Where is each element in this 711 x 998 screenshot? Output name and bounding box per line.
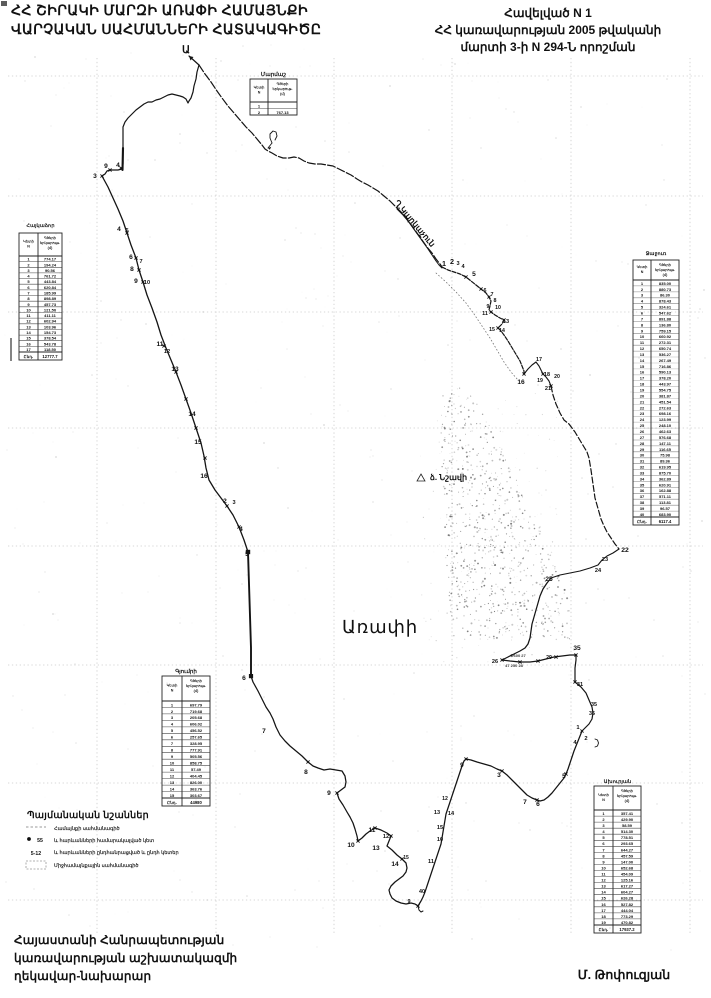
svg-text:Հավելված N 1: Հավելված N 1 [504, 6, 592, 20]
svg-text:14: 14 [26, 330, 31, 335]
svg-text:10: 10 [495, 305, 501, 311]
svg-text:31: 31 [640, 459, 645, 464]
svg-text:30: 30 [640, 453, 645, 458]
svg-text:118.50: 118.50 [44, 347, 57, 352]
svg-text:6: 6 [242, 675, 246, 682]
svg-text:590.13: 590.13 [659, 370, 672, 375]
svg-text:362.89: 362.89 [659, 476, 672, 481]
svg-text:617.27: 617.27 [621, 884, 634, 889]
svg-text:Կետի: Կետի [167, 683, 178, 688]
svg-text:12: 12 [26, 319, 31, 324]
svg-text:194.24: 194.24 [44, 262, 57, 267]
svg-text:40: 40 [419, 889, 425, 895]
svg-text:505.56: 505.56 [190, 754, 203, 759]
svg-text:14: 14 [448, 811, 455, 817]
svg-text:759.15: 759.15 [659, 328, 672, 333]
svg-text:14: 14 [391, 861, 399, 868]
svg-text:378.20: 378.20 [659, 376, 672, 381]
svg-text:Գծերի: Գծերի [190, 678, 203, 683]
svg-text:7: 7 [139, 259, 142, 265]
svg-text:կառավարության աշխատակազմի: կառավարության աշխատակազմի [14, 951, 237, 965]
svg-text:Ա: Ա [182, 44, 190, 56]
svg-text:683.90: 683.90 [659, 512, 672, 517]
svg-text:36: 36 [589, 711, 595, 717]
svg-text:9: 9 [487, 304, 490, 310]
svg-text:12: 12 [442, 796, 448, 802]
svg-text:10: 10 [437, 837, 443, 843]
svg-text:10: 10 [170, 761, 175, 766]
svg-text:554.75: 554.75 [659, 388, 672, 393]
svg-text:8: 8 [130, 266, 134, 273]
svg-text:404.45: 404.45 [190, 773, 203, 778]
svg-text:826.00: 826.00 [190, 780, 203, 785]
svg-text:Ընդ.: Ընդ. [599, 927, 609, 932]
svg-text:37: 37 [640, 494, 645, 499]
svg-text:606.02: 606.02 [190, 722, 203, 727]
svg-text:443.84: 443.84 [44, 279, 57, 284]
svg-text:5: 5 [472, 271, 476, 278]
svg-text:698.16: 698.16 [659, 411, 672, 416]
svg-text:880.73: 880.73 [659, 287, 672, 292]
svg-text:և հարևանների ընդհանրացված և ըն: և հարևանների ընդհանրացված և ընդհ կետեր [54, 849, 179, 856]
svg-text:411.11: 411.11 [44, 313, 57, 318]
svg-text:444.04: 444.04 [621, 908, 634, 913]
svg-text:12: 12 [164, 349, 170, 355]
svg-text:13: 13 [170, 780, 175, 785]
svg-text:719.68: 719.68 [190, 709, 203, 714]
svg-text:644.27: 644.27 [621, 847, 634, 852]
svg-text:456.52: 456.52 [190, 728, 203, 733]
svg-text:20: 20 [554, 374, 560, 380]
svg-text:20: 20 [640, 393, 645, 398]
svg-text:16: 16 [601, 902, 606, 907]
svg-text:363.76: 363.76 [190, 786, 203, 791]
svg-text:13: 13 [640, 352, 645, 357]
svg-text:9: 9 [327, 790, 331, 797]
svg-text:6: 6 [129, 254, 133, 261]
svg-text:697.79: 697.79 [190, 702, 203, 707]
svg-text:136.80: 136.80 [659, 322, 672, 327]
svg-text:4: 4 [116, 162, 120, 169]
svg-text:778.51: 778.51 [621, 835, 634, 840]
svg-text:6: 6 [484, 288, 487, 294]
svg-text:4: 4 [117, 226, 121, 233]
svg-text:22: 22 [640, 405, 645, 410]
svg-text:Գծերի: Գծերի [659, 262, 672, 267]
svg-text:44980: 44980 [190, 800, 202, 805]
svg-text:147.00: 147.00 [621, 859, 634, 864]
svg-text:8: 8 [304, 769, 308, 776]
svg-text:Կետի: Կետի [254, 85, 265, 90]
svg-text:10: 10 [144, 280, 150, 286]
svg-text:2: 2 [223, 498, 227, 505]
svg-text:երկարութ.: երկարութ. [617, 793, 637, 798]
svg-text:89.36: 89.36 [660, 459, 671, 464]
svg-text:29: 29 [546, 655, 552, 661]
svg-text:75.98: 75.98 [660, 453, 671, 458]
svg-text:12777.7: 12777.7 [42, 354, 58, 359]
svg-text:N: N [602, 798, 605, 802]
svg-text:3: 3 [232, 500, 235, 506]
svg-text:(մ): (մ) [280, 91, 285, 96]
svg-text:90.56: 90.56 [45, 268, 56, 273]
svg-text:Գծերի: Գծերի [277, 81, 290, 86]
svg-text:773.29: 773.29 [621, 914, 634, 919]
svg-text:205.68: 205.68 [190, 715, 203, 720]
svg-text:Կետի: Կետի [23, 239, 34, 244]
svg-text:17: 17 [536, 357, 542, 363]
svg-text:10: 10 [26, 307, 31, 312]
svg-text:443.97: 443.97 [659, 382, 672, 387]
svg-text:328.95: 328.95 [190, 741, 203, 746]
svg-text:N: N [27, 245, 30, 249]
svg-text:125.16: 125.16 [621, 878, 634, 883]
svg-text:15: 15 [437, 825, 443, 831]
svg-text:652.68: 652.68 [621, 865, 634, 870]
svg-text:Գծերի: Գծերի [621, 788, 634, 793]
svg-text:31: 31 [577, 682, 583, 688]
svg-text:9: 9 [134, 278, 138, 285]
svg-text:660.92: 660.92 [659, 334, 672, 339]
svg-text:185.99: 185.99 [44, 291, 57, 296]
svg-text:21: 21 [640, 399, 645, 404]
svg-text:8: 8 [494, 298, 497, 304]
svg-text:15: 15 [170, 793, 175, 798]
svg-text:123.99: 123.99 [659, 417, 672, 422]
svg-text:536.27: 536.27 [659, 352, 672, 357]
svg-text:272.63: 272.63 [659, 405, 672, 410]
svg-text:14: 14 [601, 890, 606, 895]
svg-text:ձ. Նշավի: ձ. Նշավի [430, 473, 467, 482]
svg-text:3: 3 [456, 261, 459, 267]
svg-text:7: 7 [262, 728, 266, 735]
svg-text:116.65: 116.65 [659, 447, 672, 452]
svg-text:23: 23 [602, 557, 608, 563]
svg-text:39: 39 [640, 506, 645, 511]
svg-text:470.82: 470.82 [621, 920, 634, 925]
svg-text:7: 7 [523, 799, 527, 806]
svg-text:16: 16 [517, 379, 525, 386]
svg-text:15: 15 [601, 896, 606, 901]
svg-text:2: 2 [584, 736, 587, 742]
svg-text:12: 12 [383, 834, 389, 840]
svg-text:26: 26 [492, 659, 498, 665]
svg-text:103.96: 103.96 [44, 324, 57, 329]
svg-text:Գծերի: Գծերի [44, 235, 57, 240]
svg-text:29: 29 [640, 447, 645, 452]
svg-text:Միջհամայնքային սահմանագիծ: Միջհամայնքային սահմանագիծ [54, 862, 139, 869]
svg-text:18: 18 [544, 372, 550, 378]
svg-text:Ջաջուռ: Ջաջուռ [646, 251, 667, 257]
svg-text:147.11: 147.11 [659, 441, 672, 446]
svg-text:858.75: 858.75 [190, 761, 203, 766]
svg-text:381.87: 381.87 [659, 393, 672, 398]
svg-text:891.88: 891.88 [659, 316, 672, 321]
svg-text:33: 33 [640, 470, 645, 475]
svg-text:620.84: 620.84 [44, 285, 57, 290]
svg-text:13: 13 [171, 366, 179, 373]
svg-text:երկարութ.: երկարութ. [272, 86, 292, 91]
svg-text:10: 10 [347, 842, 355, 849]
svg-text:767.13: 767.13 [276, 110, 289, 115]
svg-text:36: 36 [640, 488, 645, 493]
svg-text:ղեկավար-նախարար: ղեկավար-նախարար [14, 969, 151, 983]
svg-text:Կետի: Կետի [598, 792, 609, 797]
svg-text:13: 13 [434, 810, 440, 816]
svg-text:86.30: 86.30 [660, 293, 671, 298]
svg-text:Պայմանական նշաններ: Պայմանական նշաններ [27, 809, 149, 821]
svg-text:13: 13 [26, 324, 31, 329]
svg-text:N: N [641, 270, 644, 274]
svg-text:543.78: 543.78 [44, 341, 57, 346]
svg-text:619.95: 619.95 [659, 465, 672, 470]
svg-text:11: 11 [428, 859, 434, 865]
svg-text:Ընդ.: Ընդ. [24, 354, 34, 359]
svg-text:55: 55 [37, 838, 43, 844]
svg-text:650.74: 650.74 [659, 346, 672, 351]
svg-text:15: 15 [26, 336, 31, 341]
svg-text:35: 35 [591, 702, 597, 708]
svg-text:ՀՀ ՇԻՐԱԿԻ ՄԱՐԶԻ ԱՌԱՓԻ ՀԱՄԱՅՆՔԻ: ՀՀ ՇԻՐԱԿԻ ՄԱՐԶԻ ԱՌԱՓԻ ՀԱՄԱՅՆՔԻ [11, 2, 308, 18]
svg-text:96.57: 96.57 [660, 506, 671, 511]
svg-text:777.91: 777.91 [190, 748, 203, 753]
svg-text:19: 19 [601, 920, 606, 925]
svg-text:462.63: 462.63 [659, 429, 672, 434]
svg-text:N: N [171, 689, 174, 693]
svg-text:Կետի: Կետի [637, 264, 648, 269]
svg-text:602.94: 602.94 [44, 319, 57, 324]
svg-text:17: 17 [26, 347, 31, 352]
svg-text:32: 32 [640, 465, 645, 470]
svg-text:716.86: 716.86 [659, 364, 672, 369]
svg-text:457.59: 457.59 [621, 853, 634, 858]
svg-text:2: 2 [450, 257, 454, 266]
svg-text:9: 9 [460, 762, 464, 769]
svg-text:13: 13 [601, 884, 606, 889]
svg-text:11: 11 [482, 311, 488, 317]
svg-text:մարտի 3-ի N 294-Ն որոշման: մարտի 3-ի N 294-Ն որոշման [461, 40, 636, 54]
svg-text:Ախուրյան: Ախուրյան [604, 779, 632, 785]
svg-text:38: 38 [640, 500, 645, 505]
svg-text:121.50: 121.50 [44, 307, 57, 312]
svg-text:14: 14 [640, 358, 645, 363]
svg-text:47 250 28: 47 250 28 [505, 663, 524, 668]
svg-text:Ընդ.: Ընդ. [167, 800, 177, 805]
svg-text:1: 1 [442, 259, 446, 268]
svg-text:13: 13 [372, 845, 380, 852]
svg-text:57.49: 57.49 [191, 767, 202, 772]
svg-text:ՎԱՐՉԱԿԱՆ ՍԱՀՄԱՆՆԵՐԻ ՀԱՏԱԿԱԳԻԾԸ: ՎԱՐՉԱԿԱՆ ՍԱՀՄԱՆՆԵՐԻ ՀԱՏԱԿԱԳԻԾԸ [11, 21, 321, 37]
svg-text:527.82: 527.82 [621, 902, 634, 907]
svg-text:162.88: 162.88 [659, 488, 672, 493]
svg-text:774.17: 774.17 [44, 257, 57, 262]
svg-text:24: 24 [640, 417, 645, 422]
svg-text:761.72: 761.72 [44, 274, 57, 279]
svg-text:Հայաստանի Հանրապետության: Հայաստանի Հանրապետության [14, 933, 224, 947]
svg-text:571.11: 571.11 [659, 494, 672, 499]
svg-text:293.65: 293.65 [621, 841, 634, 846]
svg-text:18: 18 [640, 382, 645, 387]
svg-text:12: 12 [601, 878, 606, 883]
svg-text:Համայնքի սահմանագիծ: Համայնքի սահմանագիծ [54, 825, 120, 832]
svg-text:457.73: 457.73 [44, 302, 57, 307]
svg-text:257.65: 257.65 [190, 735, 203, 740]
svg-text:35: 35 [640, 482, 645, 487]
svg-text:154.73: 154.73 [44, 330, 57, 335]
svg-text:Գյումրի: Գյումրի [175, 669, 197, 675]
svg-text:267.49: 267.49 [659, 358, 672, 363]
svg-text:898.89: 898.89 [44, 296, 57, 301]
svg-text:3: 3 [497, 772, 501, 779]
svg-text:23: 23 [640, 411, 645, 416]
svg-text:25: 25 [640, 423, 645, 428]
svg-text:22: 22 [621, 547, 629, 554]
svg-text:14: 14 [499, 328, 505, 334]
svg-text:620.91: 620.91 [659, 482, 672, 487]
svg-text:19: 19 [640, 388, 645, 393]
svg-text:18: 18 [601, 914, 606, 919]
svg-text:Մ. Թոփուզյան: Մ. Թոփուզյան [578, 968, 671, 982]
svg-text:6117.4: 6117.4 [659, 519, 672, 524]
svg-text:272.31: 272.31 [659, 340, 672, 345]
svg-text:6: 6 [536, 801, 540, 808]
svg-text:303.67: 303.67 [190, 793, 203, 798]
svg-text:27: 27 [640, 435, 645, 440]
svg-text:9: 9 [408, 899, 411, 905]
svg-text:ՀՀ կառավարության 2005 թվականի: ՀՀ կառավարության 2005 թվականի [435, 23, 661, 37]
svg-text:Փ600 27: Փ600 27 [510, 653, 526, 658]
svg-text:(մ): (մ) [625, 798, 630, 803]
svg-text:(մ): (մ) [48, 245, 53, 250]
svg-text:28: 28 [640, 441, 645, 446]
svg-text:9: 9 [104, 163, 108, 170]
svg-text:26: 26 [640, 429, 645, 434]
svg-text:N: N [258, 91, 261, 95]
svg-text:58.59: 58.59 [622, 823, 633, 828]
svg-text:3: 3 [93, 173, 97, 180]
svg-text:16: 16 [26, 341, 31, 346]
svg-text:15: 15 [403, 855, 409, 861]
svg-text:16: 16 [640, 370, 645, 375]
svg-text:10: 10 [640, 334, 645, 339]
svg-text:35: 35 [573, 645, 581, 652]
svg-text:երկարութ.: երկարութ. [655, 267, 675, 272]
svg-text:Մարմաշ: Մարմաշ [261, 71, 286, 78]
svg-text:12: 12 [640, 346, 645, 351]
svg-text:357.41: 357.41 [621, 811, 634, 816]
svg-text:12: 12 [170, 773, 175, 778]
svg-text:14: 14 [170, 786, 175, 791]
svg-text:(մ): (մ) [194, 688, 199, 693]
svg-text:514.30: 514.30 [621, 829, 634, 834]
svg-text:երկարութ.: երկարութ. [186, 683, 206, 688]
svg-text:19: 19 [537, 378, 543, 384]
svg-text:15: 15 [489, 327, 495, 333]
svg-text:24: 24 [595, 568, 602, 574]
svg-text:113.81: 113.81 [659, 500, 672, 505]
svg-text:324.61: 324.61 [659, 305, 672, 310]
svg-text:17: 17 [640, 376, 645, 381]
svg-text:15: 15 [640, 364, 645, 369]
svg-text:34: 34 [640, 476, 645, 481]
svg-text:248.10: 248.10 [659, 423, 672, 428]
svg-text:և հարևանների համարակալված կետ: և հարևանների համարակալված կետ [54, 837, 154, 844]
svg-text:17937.2: 17937.2 [619, 927, 635, 932]
svg-text:Հայկաձոր: Հայկաձոր [26, 223, 54, 229]
svg-text:875.70: 875.70 [659, 470, 672, 475]
svg-text:10: 10 [601, 865, 606, 870]
svg-text:14: 14 [188, 411, 196, 418]
svg-text:5-12: 5-12 [31, 851, 41, 857]
svg-text:451.54: 451.54 [659, 399, 672, 404]
svg-text:429.90: 429.90 [621, 817, 634, 822]
svg-text:4: 4 [239, 526, 243, 533]
svg-text:25: 25 [545, 576, 553, 583]
svg-text:40: 40 [640, 512, 645, 517]
svg-text:835.00: 835.00 [659, 281, 672, 286]
svg-text:17: 17 [601, 908, 606, 913]
svg-text:576.68: 576.68 [659, 435, 672, 440]
svg-text:626.28: 626.28 [621, 896, 634, 901]
svg-text:Առափի: Առափի [342, 617, 418, 637]
svg-text:15: 15 [194, 439, 202, 446]
svg-text:878.43: 878.43 [659, 299, 672, 304]
svg-text:378.54: 378.54 [44, 336, 57, 341]
svg-text:547.62: 547.62 [659, 310, 672, 315]
svg-text:երկարութ.: երկարութ. [40, 240, 60, 245]
svg-text:454.09: 454.09 [621, 871, 634, 876]
svg-text:16: 16 [200, 473, 208, 480]
svg-text:Ընդ.: Ընդ. [637, 519, 647, 524]
svg-text:604.27: 604.27 [621, 890, 634, 895]
svg-text:(մ): (մ) [663, 272, 668, 277]
